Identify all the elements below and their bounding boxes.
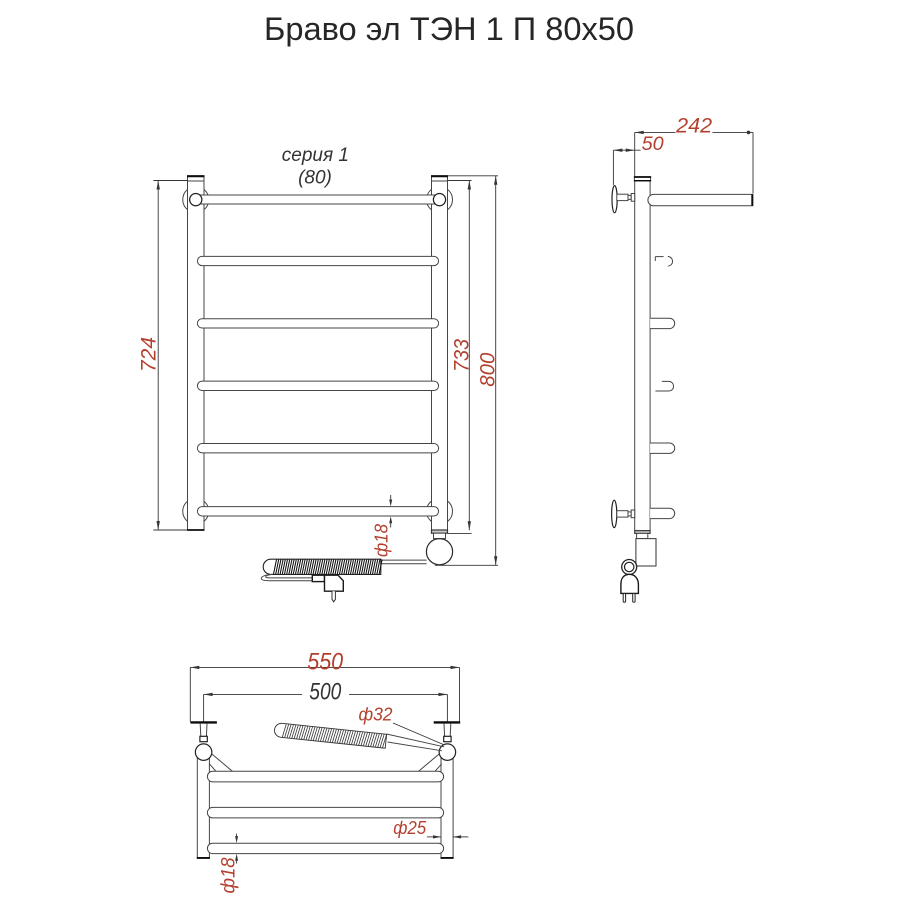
svg-text:550: 550 (307, 649, 344, 676)
svg-text:серия 1: серия 1 (282, 145, 349, 166)
svg-text:ф25: ф25 (393, 818, 427, 838)
svg-text:800: 800 (477, 352, 500, 386)
svg-text:500: 500 (309, 678, 342, 705)
svg-text:50: 50 (642, 134, 664, 155)
svg-text:ф18: ф18 (218, 857, 240, 893)
svg-text:ф32: ф32 (359, 705, 393, 725)
svg-text:(80): (80) (298, 168, 332, 189)
svg-text:724: 724 (138, 337, 161, 372)
svg-text:ф18: ф18 (372, 524, 392, 557)
svg-text:242: 242 (675, 113, 712, 137)
svg-text:Браво эл ТЭН 1 П 80x50: Браво эл ТЭН 1 П 80x50 (264, 10, 634, 47)
svg-text:733: 733 (450, 339, 473, 372)
